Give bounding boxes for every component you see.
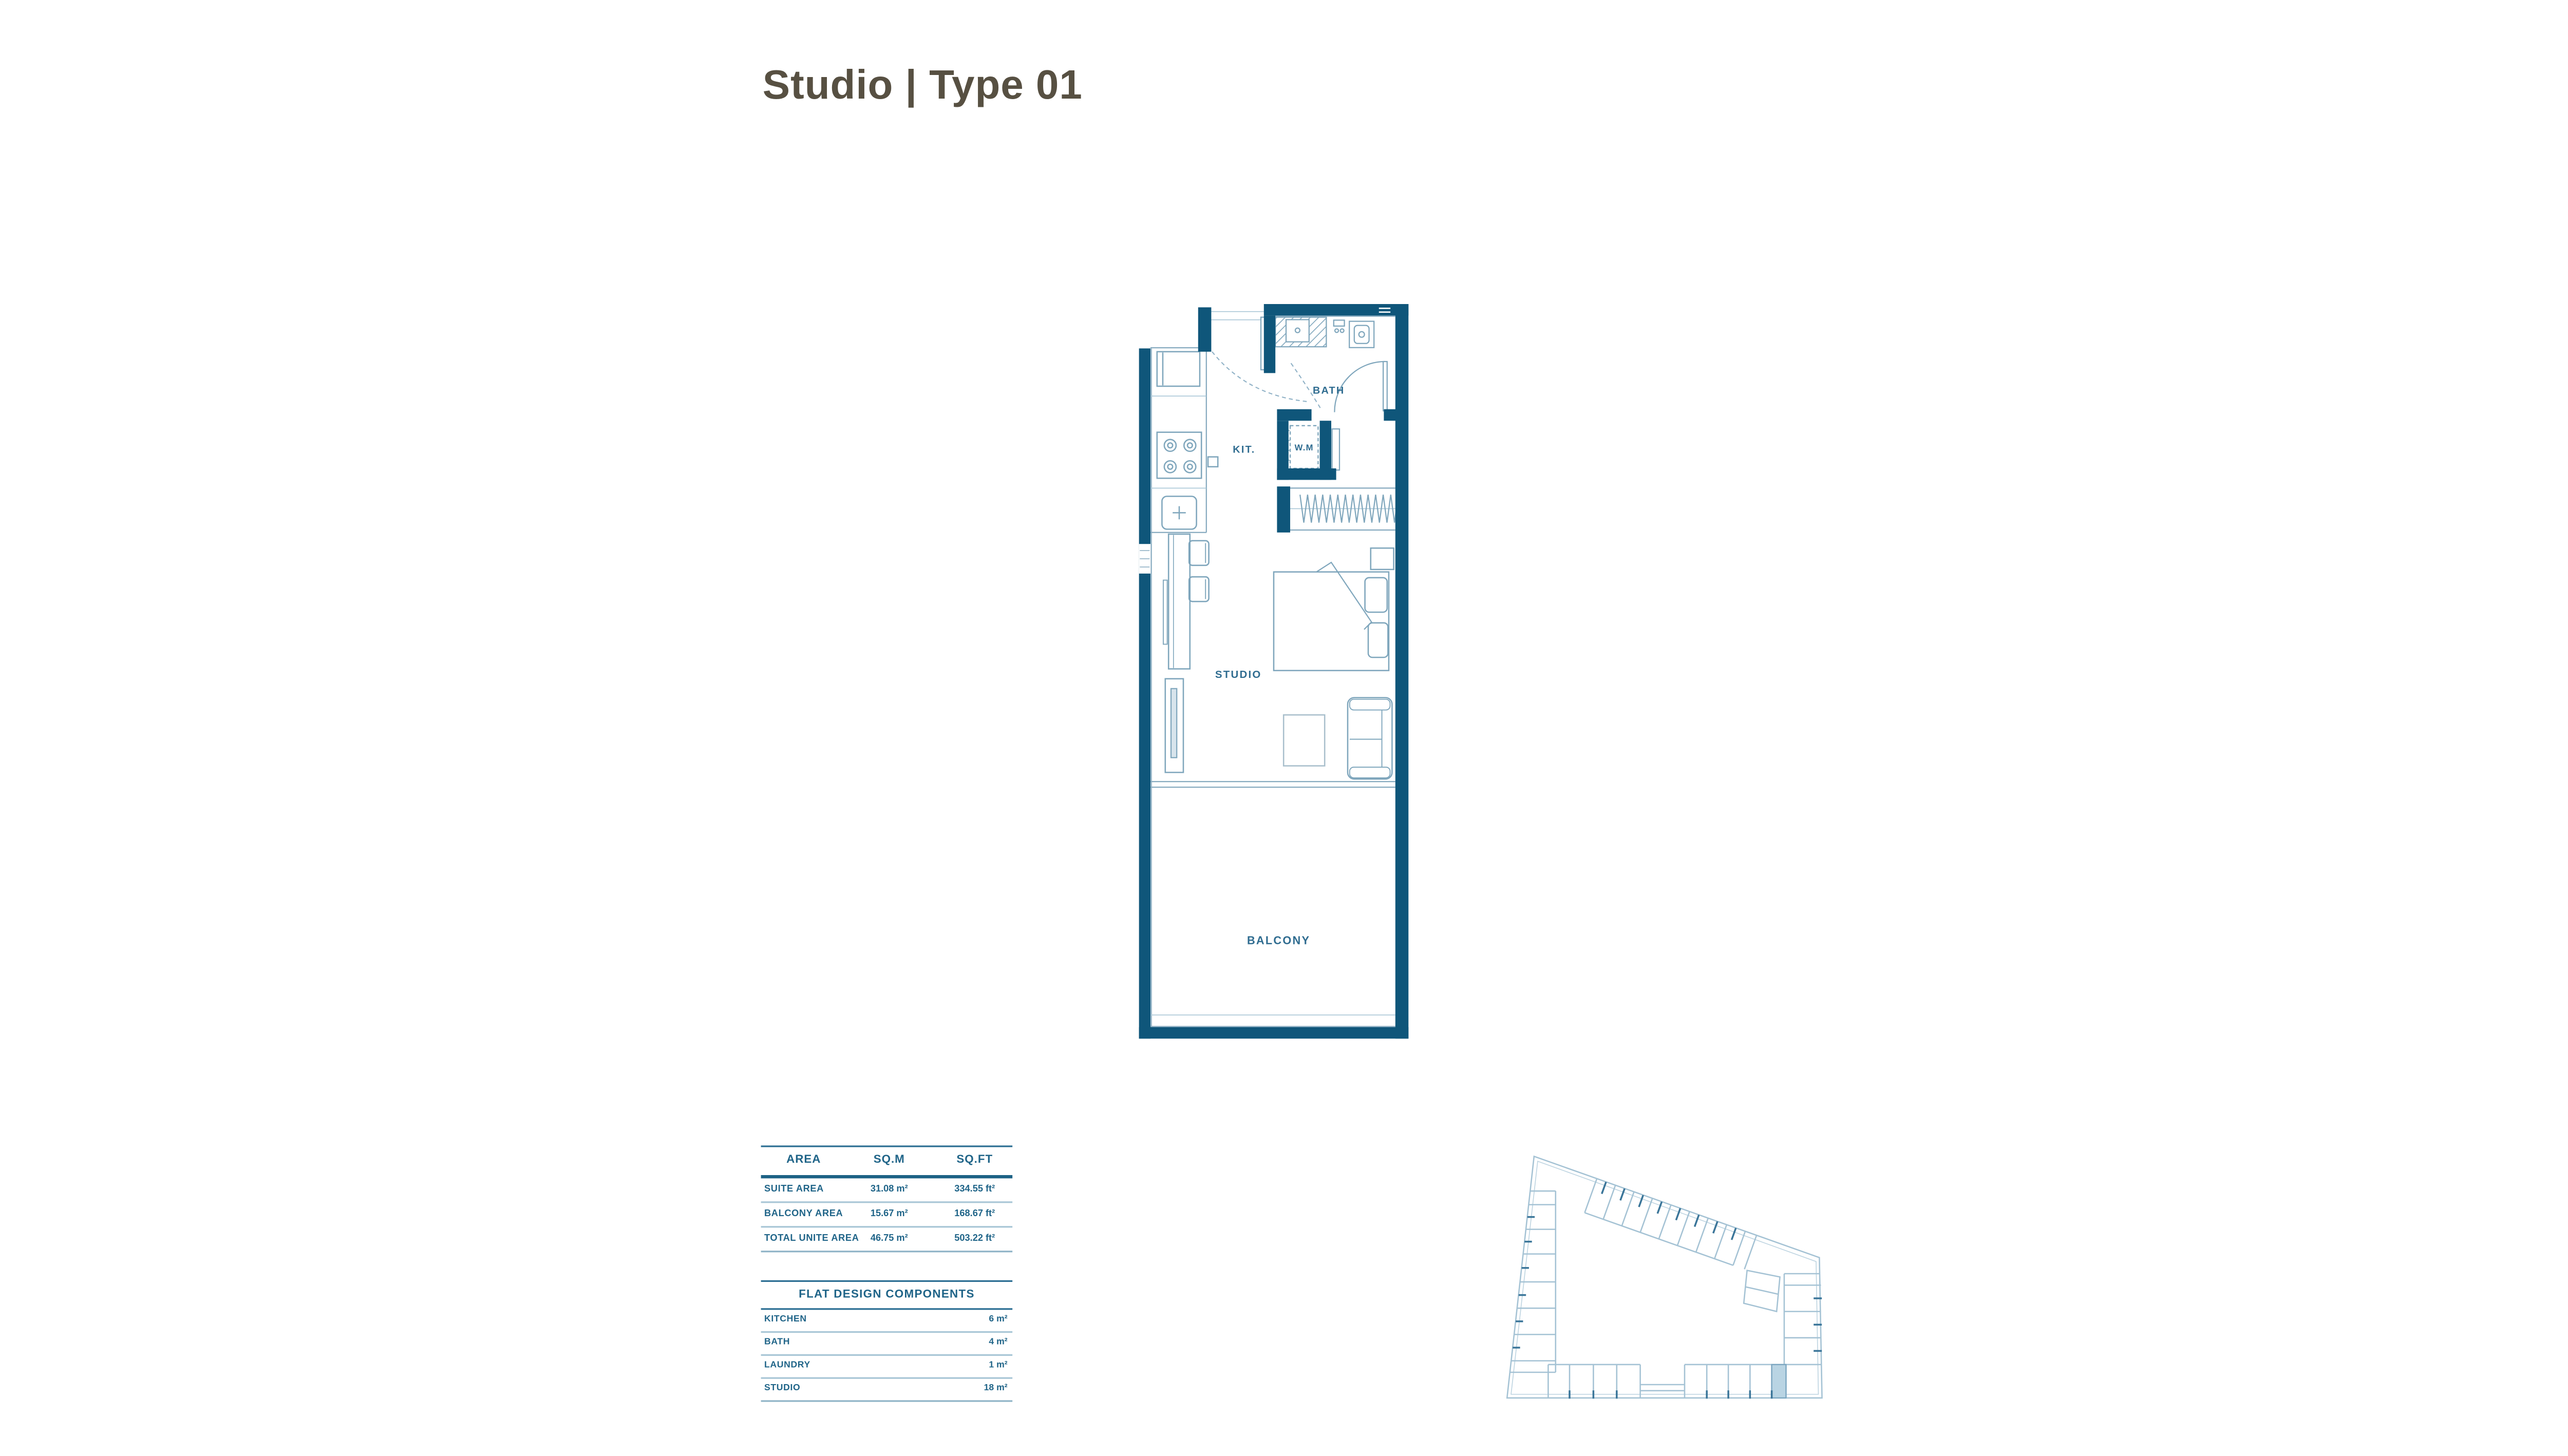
- table-row: SUITE AREA 31.08 m² 334.55 ft²: [761, 1178, 1013, 1202]
- key-plan-drawing: [1504, 1142, 1833, 1402]
- kitchen-label: KIT.: [1233, 445, 1255, 456]
- components-table-title: FLAT DESIGN COMPONENTS: [761, 1282, 1013, 1309]
- washing-machine-label: W.M: [1295, 443, 1314, 452]
- tv: [1171, 689, 1177, 758]
- floor-plan-drawing: [1139, 304, 1409, 1038]
- balcony-label: BALCONY: [1247, 936, 1310, 947]
- brochure-page: Studio | Type 01: [0, 0, 2568, 1456]
- area-table-header: AREA SQ.M SQ.FT: [761, 1147, 1013, 1178]
- row-sqft: 168.67 ft²: [954, 1209, 995, 1219]
- key-plan: [1504, 1142, 1833, 1402]
- row-label: SUITE AREA: [764, 1184, 824, 1194]
- tables-block: AREA SQ.M SQ.FT SUITE AREA 31.08 m² 334.…: [761, 1145, 1013, 1401]
- row-sqm: 46.75 m²: [871, 1234, 908, 1243]
- row-value: 4 m²: [989, 1338, 1007, 1348]
- area-table: AREA SQ.M SQ.FT SUITE AREA 31.08 m² 334.…: [761, 1145, 1013, 1251]
- bath-label: BATH: [1313, 385, 1345, 396]
- row-value: 1 m²: [989, 1361, 1007, 1371]
- page-title: Studio | Type 01: [763, 63, 1083, 110]
- row-label: LAUNDRY: [764, 1361, 810, 1371]
- table-row: TOTAL UNITE AREA 46.75 m² 503.22 ft²: [761, 1227, 1013, 1252]
- row-label: TOTAL UNITE AREA: [764, 1234, 859, 1243]
- row-sqm: 31.08 m²: [871, 1184, 908, 1194]
- components-table: FLAT DESIGN COMPONENTS KITCHEN 6 m² BATH…: [761, 1280, 1013, 1401]
- header-sqm: SQ.M: [874, 1155, 905, 1166]
- header-area: AREA: [786, 1155, 821, 1166]
- highlighted-unit: [1772, 1365, 1786, 1398]
- table-row: BATH 4 m²: [761, 1332, 1013, 1355]
- row-value: 6 m²: [989, 1315, 1007, 1325]
- row-label: STUDIO: [764, 1384, 800, 1393]
- row-sqft: 503.22 ft²: [954, 1234, 995, 1243]
- row-sqft: 334.55 ft²: [954, 1184, 995, 1194]
- table-row: BALCONY AREA 15.67 m² 168.67 ft²: [761, 1202, 1013, 1227]
- row-sqm: 15.67 m²: [871, 1209, 908, 1219]
- table-row: KITCHEN 6 m²: [761, 1309, 1013, 1332]
- studio-label: STUDIO: [1215, 669, 1262, 680]
- row-label: BATH: [764, 1338, 790, 1348]
- bath-door-leaf: [1383, 362, 1387, 411]
- row-label: KITCHEN: [764, 1315, 807, 1325]
- row-value: 18 m²: [984, 1384, 1008, 1393]
- header-sqft: SQ.FT: [956, 1155, 993, 1166]
- table-row: STUDIO 18 m²: [761, 1378, 1013, 1401]
- floor-plan: BATH KIT. W.M STUDIO BALCONY: [1139, 304, 1409, 1038]
- table-row: LAUNDRY 1 m²: [761, 1355, 1013, 1378]
- row-label: BALCONY AREA: [764, 1209, 843, 1219]
